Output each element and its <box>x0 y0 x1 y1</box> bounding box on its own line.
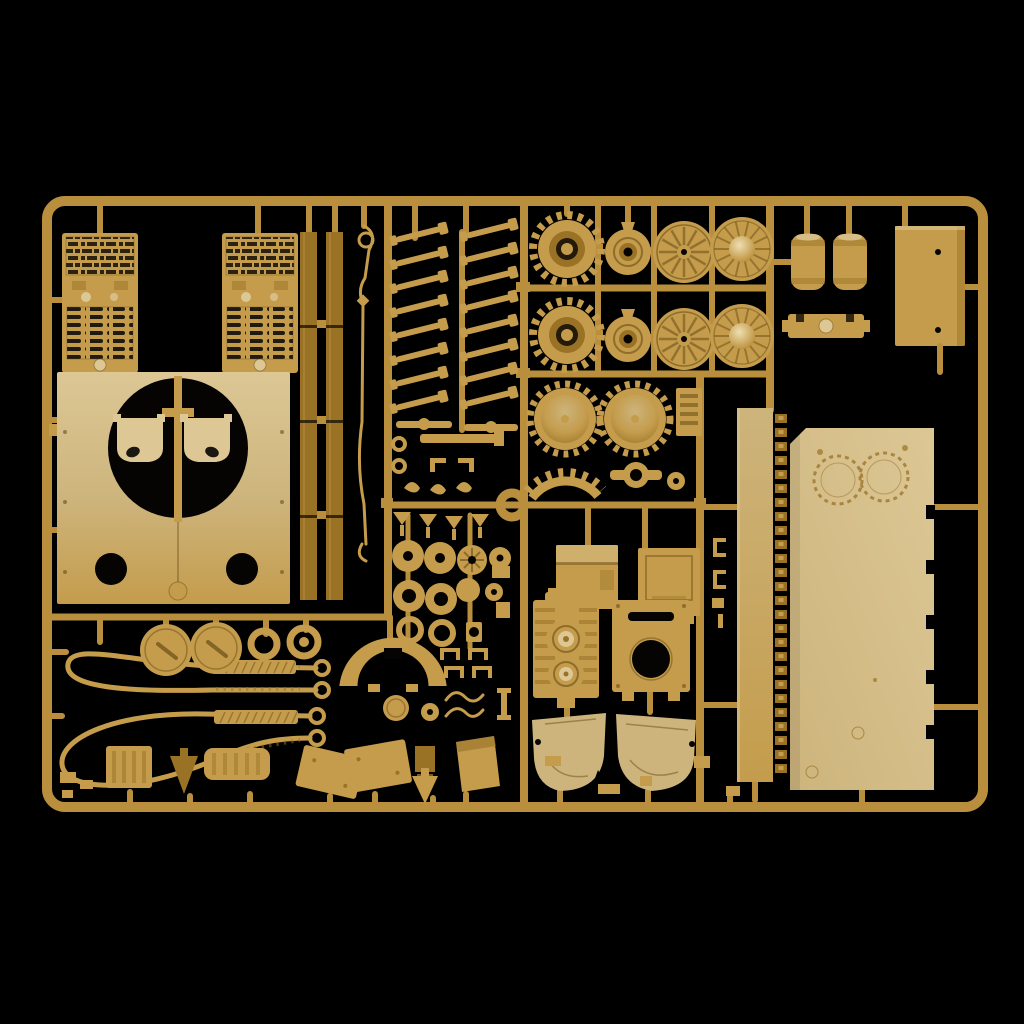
road-wheel-1 <box>653 221 715 283</box>
round-hatch-1 <box>140 624 192 676</box>
hull-side-panel-1 <box>532 713 610 792</box>
cooling-fan-2 <box>548 656 584 692</box>
mount-bracket-right <box>180 414 232 462</box>
photo-canvas <box>0 0 1024 1024</box>
lower-hull-panel <box>790 428 935 790</box>
road-wheel-2 <box>653 308 715 370</box>
model-kit-sprue-photo <box>0 0 1024 1024</box>
round-hatch-2 <box>190 622 242 674</box>
muffler-1 <box>791 234 825 291</box>
hull-hatch-hole-left <box>95 553 127 585</box>
ribbed-crate <box>106 746 152 788</box>
angled-panel <box>456 736 500 792</box>
muffler-2 <box>833 234 867 291</box>
engine-block <box>533 592 599 708</box>
road-wheel-4 <box>710 304 774 368</box>
mount-bracket-left <box>113 414 165 462</box>
cable-sleeve-2 <box>214 710 298 724</box>
hull-top-panel <box>49 372 290 604</box>
vent-plate <box>676 388 702 436</box>
rear-plate <box>612 600 690 701</box>
ribbed-roll <box>204 748 270 780</box>
exhaust-bracket <box>782 314 870 338</box>
cooling-fan-1 <box>546 619 586 659</box>
hull-hatch-hole-right <box>226 553 258 585</box>
rear-plate-opening <box>632 640 670 678</box>
engine-grille-left <box>62 233 138 373</box>
road-wheel-3 <box>710 217 774 281</box>
engine-grille-right <box>222 233 298 373</box>
